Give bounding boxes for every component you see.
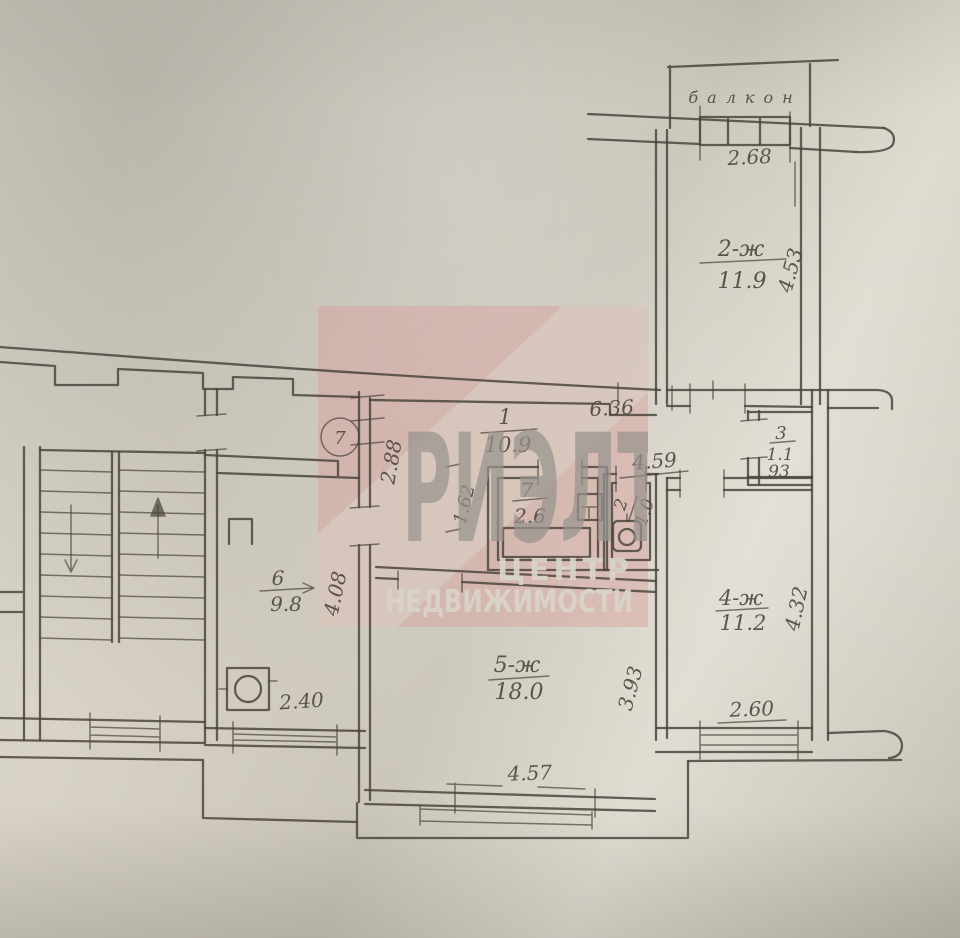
dim-closet-width: 93 (768, 462, 790, 482)
kitchen-door-niche (229, 519, 252, 544)
stairs-up-arrow-icon (151, 498, 165, 558)
balcony-label: балкон (688, 88, 801, 107)
room4-number: 4-ж (718, 586, 763, 610)
floor-plan-svg: балкон 2.68 2-ж 11.9 4.53 1 10.9 6.36 4.… (0, 0, 960, 938)
closet-number: 3 (775, 423, 786, 444)
scanned-floor-plan-photo: балкон 2.68 2-ж 11.9 4.53 1 10.9 6.36 4.… (0, 0, 960, 938)
dim-room5-depth: 3.93 (613, 664, 648, 713)
watermark-line1: ЦЕНТР (497, 553, 633, 588)
dim-room5-window: 4.57 (506, 760, 553, 786)
right-exterior-wall (812, 390, 828, 740)
watermark-line2: НЕДВИЖИМОСТИ (385, 584, 633, 620)
room4-walls (656, 470, 902, 761)
stairs-down-arrow-icon (65, 505, 77, 572)
dim-room4-depth: 4.32 (780, 584, 813, 634)
circled-number: 7 (334, 428, 346, 449)
stairwell (0, 447, 357, 822)
room2-number: 2-ж (717, 237, 764, 262)
room4-area: 11.2 (720, 611, 767, 635)
dim-kitchen-width: 2.40 (277, 687, 324, 714)
watermark-word: РИЭЛТ (402, 403, 664, 577)
dim-balcony-window: 2.68 (726, 144, 773, 170)
stove-icon (219, 668, 277, 710)
dim-room4-window: 2.60 (728, 696, 775, 722)
room2-area: 11.9 (718, 269, 767, 294)
room6-number: 6 (272, 566, 285, 590)
room6-area: 9.8 (270, 592, 302, 616)
dim-room2-depth: 4.53 (773, 246, 808, 296)
room5-area: 18.0 (495, 680, 544, 705)
room5-number: 5-ж (494, 653, 540, 678)
watermark-text: РИЭЛТ ЦЕНТР НЕДВИЖИМОСТИ (385, 403, 664, 620)
